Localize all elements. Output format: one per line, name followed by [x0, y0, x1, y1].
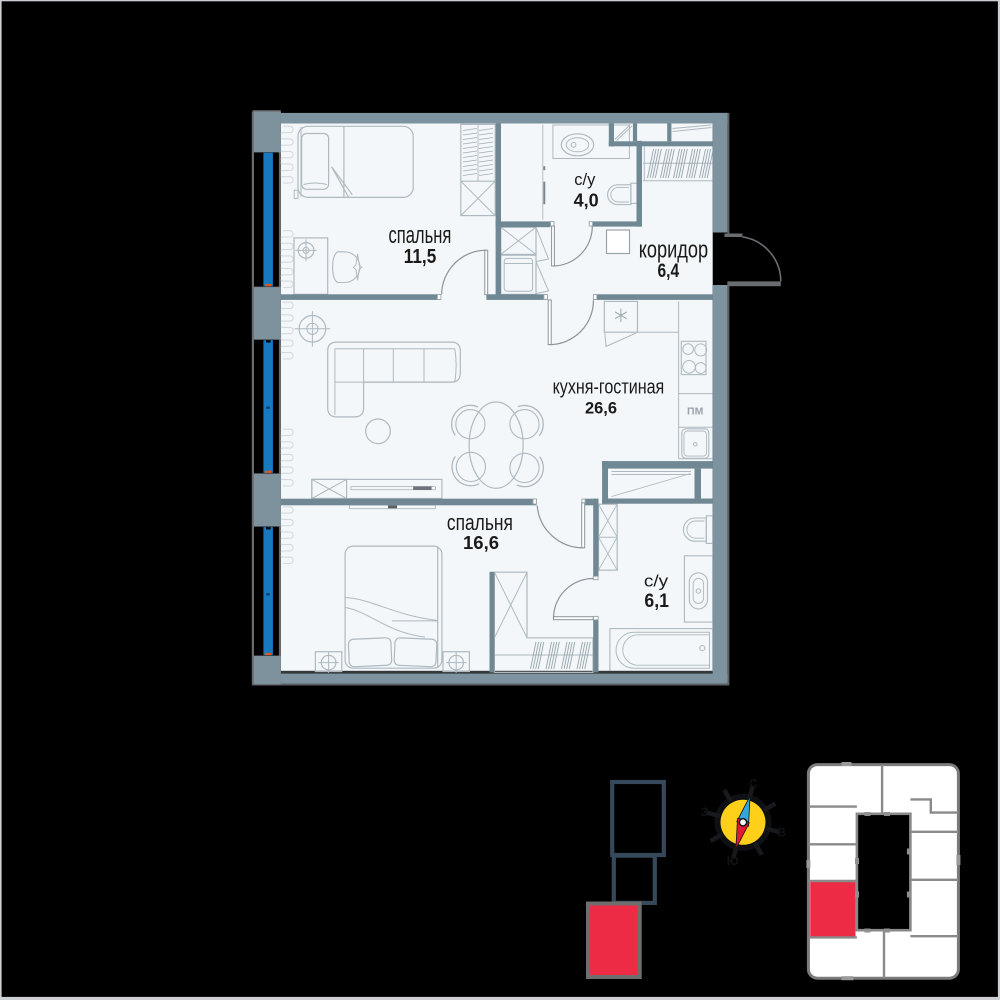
svg-text:6,1: 6,1 — [644, 589, 669, 611]
svg-text:4,0: 4,0 — [574, 190, 599, 210]
svg-text:З: З — [701, 807, 708, 819]
svg-text:с/у: с/у — [644, 572, 668, 591]
svg-text:с/у: с/у — [574, 171, 596, 189]
svg-text:11,5: 11,5 — [404, 245, 437, 268]
svg-text:Ю: Ю — [727, 856, 739, 868]
svg-text:26,6: 26,6 — [585, 398, 617, 417]
svg-text:В: В — [777, 828, 785, 840]
svg-text:С: С — [749, 779, 757, 791]
svg-text:ПМ: ПМ — [687, 405, 704, 417]
svg-text:16,6: 16,6 — [463, 532, 499, 553]
svg-text:кухня-гостиная: кухня-гостиная — [553, 376, 665, 398]
svg-text:6,4: 6,4 — [657, 260, 679, 282]
